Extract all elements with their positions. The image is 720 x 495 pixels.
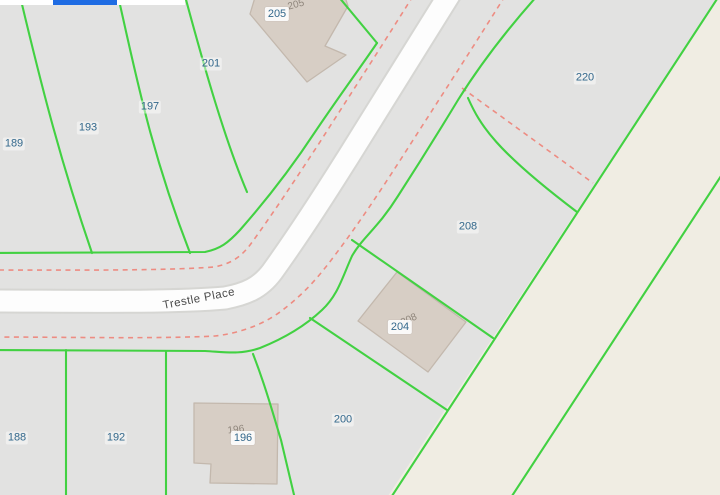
- road-trestle-place: [0, 0, 451, 301]
- building-196: [194, 403, 278, 484]
- easement-branch: [462, 88, 593, 183]
- building-204: [358, 272, 466, 372]
- map-graphics: [0, 0, 720, 495]
- lot-line-193-197: [118, 0, 190, 253]
- building-205: [250, 0, 348, 82]
- terrain-region: [386, 0, 720, 495]
- toolbar-blue-button[interactable]: [53, 0, 117, 5]
- toolbar-fragment: [0, 0, 185, 5]
- lot-line-189-193: [20, 0, 92, 253]
- lot-line-197-201: [185, 0, 247, 192]
- buildings: [194, 0, 466, 484]
- lot-line-220-208: [468, 98, 577, 212]
- map-canvas[interactable]: 2052081961891931972012202082001921882052…: [0, 0, 720, 495]
